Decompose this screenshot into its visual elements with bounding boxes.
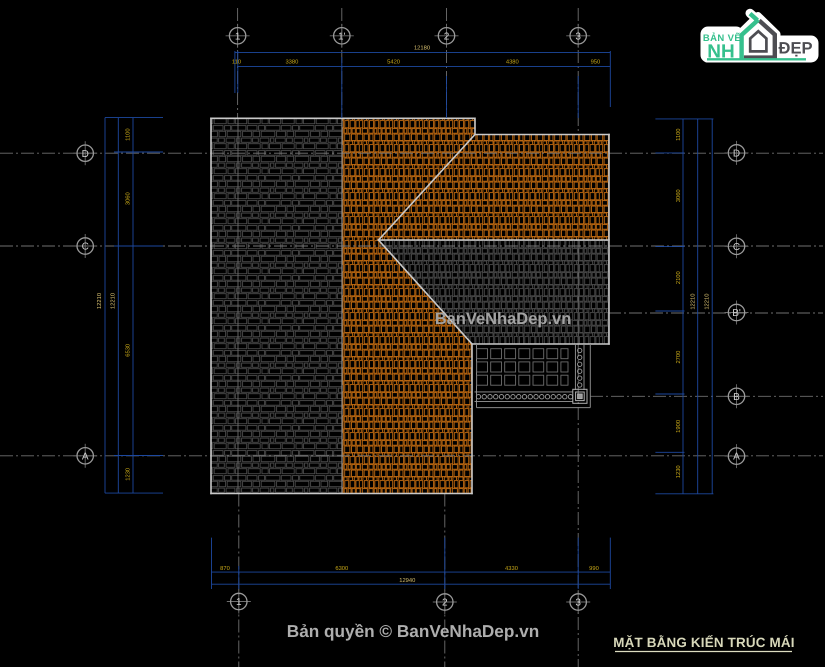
svg-text:ĐẸP: ĐẸP xyxy=(779,40,813,58)
svg-text:110: 110 xyxy=(232,59,241,66)
svg-text:B': B' xyxy=(732,308,741,319)
svg-text:4380: 4380 xyxy=(506,59,519,66)
svg-text:2: 2 xyxy=(442,598,448,609)
svg-text:12940: 12940 xyxy=(399,577,415,584)
svg-text:MẶT BẰNG KIẾN TRÚC MÁI: MẶT BẰNG KIẾN TRÚC MÁI xyxy=(613,635,794,650)
svg-text:12210: 12210 xyxy=(96,293,103,309)
svg-text:C: C xyxy=(82,242,89,253)
svg-text:6300: 6300 xyxy=(335,565,348,572)
svg-text:3060: 3060 xyxy=(124,192,131,205)
svg-text:3380: 3380 xyxy=(285,59,298,66)
svg-text:2100: 2100 xyxy=(675,271,682,284)
svg-text:1230: 1230 xyxy=(124,468,131,481)
svg-text:1100: 1100 xyxy=(124,128,131,140)
svg-text:D: D xyxy=(733,149,740,160)
svg-text:3: 3 xyxy=(575,598,581,609)
svg-text:870: 870 xyxy=(220,565,230,572)
svg-text:1': 1' xyxy=(338,31,346,42)
svg-text:3: 3 xyxy=(575,31,581,42)
svg-text:12210: 12210 xyxy=(703,294,710,310)
svg-text:2: 2 xyxy=(444,31,450,42)
svg-text:Bản quyền © BanVeNhaDep.vn: Bản quyền © BanVeNhaDep.vn xyxy=(287,621,539,641)
svg-text:1: 1 xyxy=(236,597,242,608)
svg-text:BanVeNhaDep.vn: BanVeNhaDep.vn xyxy=(435,310,572,328)
svg-text:D: D xyxy=(82,149,89,160)
svg-text:12180: 12180 xyxy=(414,45,430,52)
svg-text:1100: 1100 xyxy=(675,128,682,140)
svg-text:1: 1 xyxy=(235,31,241,42)
svg-text:A: A xyxy=(733,452,740,463)
svg-text:950: 950 xyxy=(591,59,601,66)
svg-text:1230: 1230 xyxy=(675,465,682,478)
svg-text:1900: 1900 xyxy=(675,420,682,433)
svg-text:C: C xyxy=(733,242,740,253)
svg-text:5420: 5420 xyxy=(387,59,400,66)
svg-text:12210: 12210 xyxy=(109,293,116,309)
svg-text:B: B xyxy=(733,392,740,403)
svg-text:12210: 12210 xyxy=(690,294,697,310)
svg-text:990: 990 xyxy=(589,565,599,572)
svg-text:A: A xyxy=(82,451,89,462)
svg-text:3060: 3060 xyxy=(675,189,682,202)
svg-text:2700: 2700 xyxy=(675,351,682,364)
svg-text:4330: 4330 xyxy=(505,565,518,572)
svg-text:6530: 6530 xyxy=(124,344,131,357)
